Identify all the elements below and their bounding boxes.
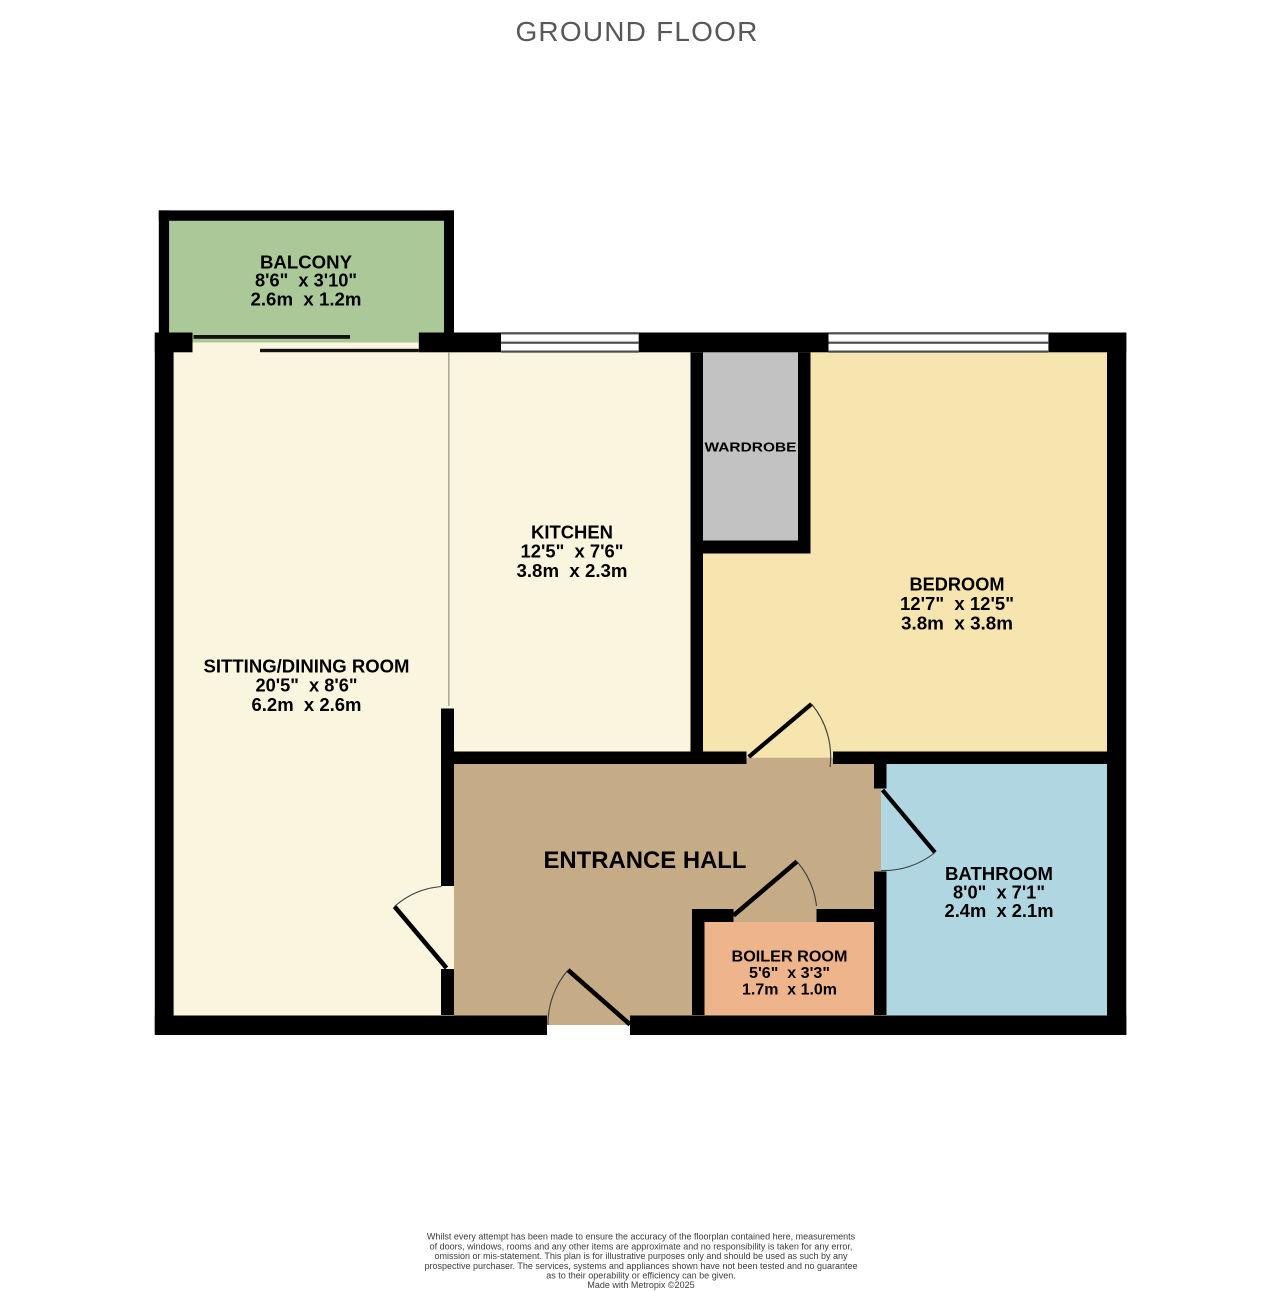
svg-text:3.8m x 2.3m: 3.8m x 2.3m [517, 561, 628, 581]
svg-text:1.7m x 1.0m: 1.7m x 1.0m [742, 981, 837, 998]
svg-text:omission or mis-statement. Thi: omission or mis-statement. This plan is … [434, 1251, 848, 1261]
svg-text:BOILER ROOM: BOILER ROOM [732, 948, 848, 965]
svg-text:GROUND FLOOR: GROUND FLOOR [515, 16, 758, 47]
svg-text:BEDROOM: BEDROOM [910, 574, 1005, 594]
svg-text:SITTING/DINING ROOM: SITTING/DINING ROOM [204, 657, 410, 677]
svg-text:2.4m x 2.1m: 2.4m x 2.1m [945, 901, 1054, 921]
svg-text:as to their operability or eff: as to their operability or efficiency ca… [546, 1271, 735, 1281]
svg-text:5'6" x 3'3": 5'6" x 3'3" [749, 965, 830, 982]
svg-text:BATHROOM: BATHROOM [945, 864, 1053, 884]
svg-text:8'6" x 3'10": 8'6" x 3'10" [255, 271, 357, 291]
svg-text:KITCHEN: KITCHEN [531, 523, 613, 543]
svg-text:20'5" x 8'6": 20'5" x 8'6" [256, 676, 358, 696]
svg-text:WARDROBE: WARDROBE [705, 440, 797, 455]
svg-text:2.6m x 1.2m: 2.6m x 1.2m [251, 290, 362, 310]
svg-text:Whilst every attempt has been: Whilst every attempt has been made to en… [427, 1232, 856, 1242]
svg-text:8'0" x 7'1": 8'0" x 7'1" [953, 883, 1045, 903]
svg-text:of doors, windows, rooms and a: of doors, windows, rooms and any other i… [430, 1241, 853, 1251]
svg-text:12'7" x 12'5": 12'7" x 12'5" [900, 594, 1014, 614]
svg-text:prospective purchaser. The ser: prospective purchaser. The services, sys… [424, 1261, 857, 1271]
svg-text:ENTRANCE HALL: ENTRANCE HALL [544, 847, 747, 874]
svg-text:12'5" x 7'6": 12'5" x 7'6" [521, 542, 624, 562]
svg-text:6.2m x 2.6m: 6.2m x 2.6m [252, 695, 362, 715]
svg-text:3.8m x 3.8m: 3.8m x 3.8m [901, 613, 1013, 633]
svg-text:Made with Metropix ©2025: Made with Metropix ©2025 [587, 1280, 694, 1290]
svg-text:BALCONY: BALCONY [260, 253, 352, 273]
